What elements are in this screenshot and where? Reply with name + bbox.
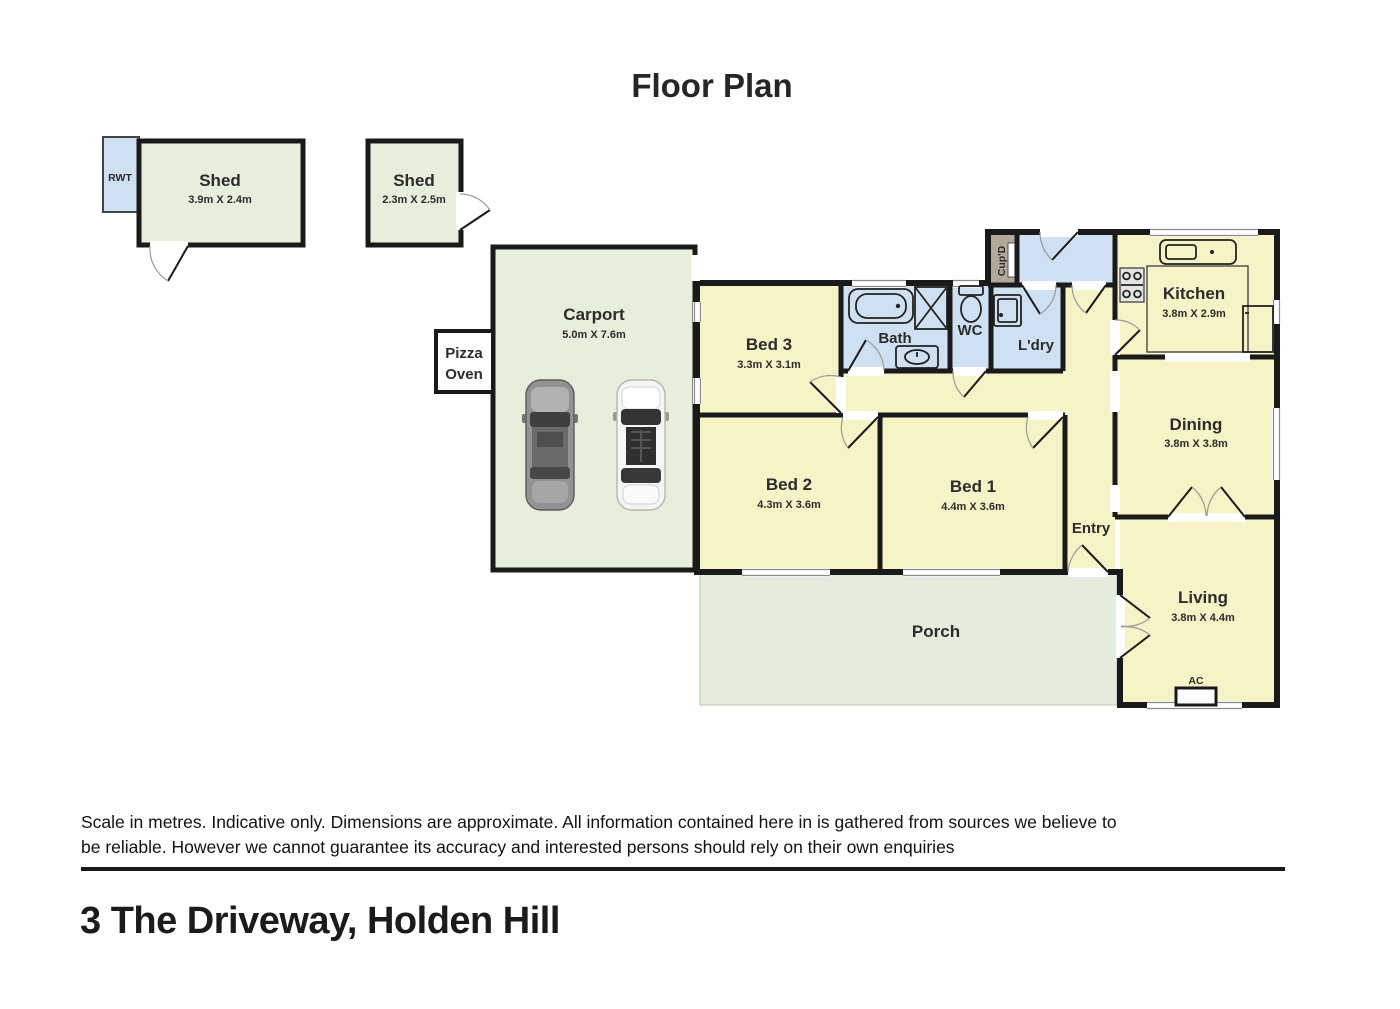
dining-label: Dining	[1170, 415, 1223, 434]
shed1-label: Shed	[199, 171, 241, 190]
kitchen-dims: 3.8m X 2.9m	[1162, 308, 1226, 320]
shed2-dims: 2.3m X 2.5m	[382, 194, 446, 206]
dining-dims: 3.8m X 3.8m	[1164, 438, 1228, 450]
window	[742, 568, 830, 577]
carport-dims: 5.0m X 7.6m	[562, 329, 626, 341]
window	[693, 378, 702, 404]
bed2-label: Bed 2	[766, 475, 812, 494]
property-address: 3 The Driveway, Holden Hill	[80, 900, 560, 943]
bed2-dims: 4.3m X 3.6m	[757, 499, 821, 511]
floor-plan-page: Floor Plan	[0, 0, 1400, 1009]
ldry-label: L'dry	[1018, 337, 1055, 354]
pizza-oven-label-2: Oven	[445, 366, 483, 383]
window	[1272, 408, 1281, 480]
porch-floor	[700, 572, 1117, 705]
car-dark-icon	[522, 380, 578, 510]
living-label: Living	[1178, 588, 1228, 607]
wc-label: WC	[958, 322, 983, 339]
bed3-dims: 3.3m X 3.1m	[737, 359, 801, 371]
floor-plan-canvas: Floor Plan	[0, 0, 1400, 790]
car-white-icon	[613, 380, 669, 510]
page-title: Floor Plan	[631, 67, 792, 104]
back-entry-floor	[1017, 232, 1115, 285]
rwt-label: RWT	[108, 172, 132, 184]
bed1-label: Bed 1	[950, 477, 996, 496]
disclaimer-text: Scale in metres. Indicative only. Dimens…	[81, 810, 1136, 861]
shed2-floor	[368, 141, 461, 245]
cooktop-icon	[1120, 268, 1144, 302]
bedrooms-hall-floor	[697, 371, 1115, 572]
bed3-label: Bed 3	[746, 335, 792, 354]
room-fills	[103, 137, 1277, 705]
ac-label: AC	[1188, 675, 1204, 687]
dining-floor	[1115, 357, 1277, 517]
carport-label: Carport	[563, 305, 625, 324]
bed1-dims: 4.4m X 3.6m	[941, 501, 1005, 513]
window	[852, 279, 906, 288]
window	[1150, 228, 1258, 237]
door	[150, 246, 188, 281]
mini-hall-floor	[1063, 285, 1115, 375]
entry-label: Entry	[1072, 520, 1111, 537]
window	[903, 568, 1000, 577]
kitchen-label: Kitchen	[1163, 284, 1225, 303]
shed1-dims: 3.9m X 2.4m	[188, 194, 252, 206]
ac-unit	[1176, 688, 1216, 705]
bath-label: Bath	[878, 330, 911, 347]
footer-divider	[81, 867, 1285, 871]
porch-label: Porch	[912, 622, 960, 641]
shed1-floor	[139, 141, 303, 245]
shed2-label: Shed	[393, 171, 435, 190]
cupd-label: Cup'D	[996, 245, 1008, 276]
pizza-oven-label-1: Pizza	[445, 345, 483, 362]
window	[693, 302, 702, 322]
living-dims: 3.8m X 4.4m	[1171, 612, 1235, 624]
cupboard-shelf	[1008, 243, 1015, 277]
